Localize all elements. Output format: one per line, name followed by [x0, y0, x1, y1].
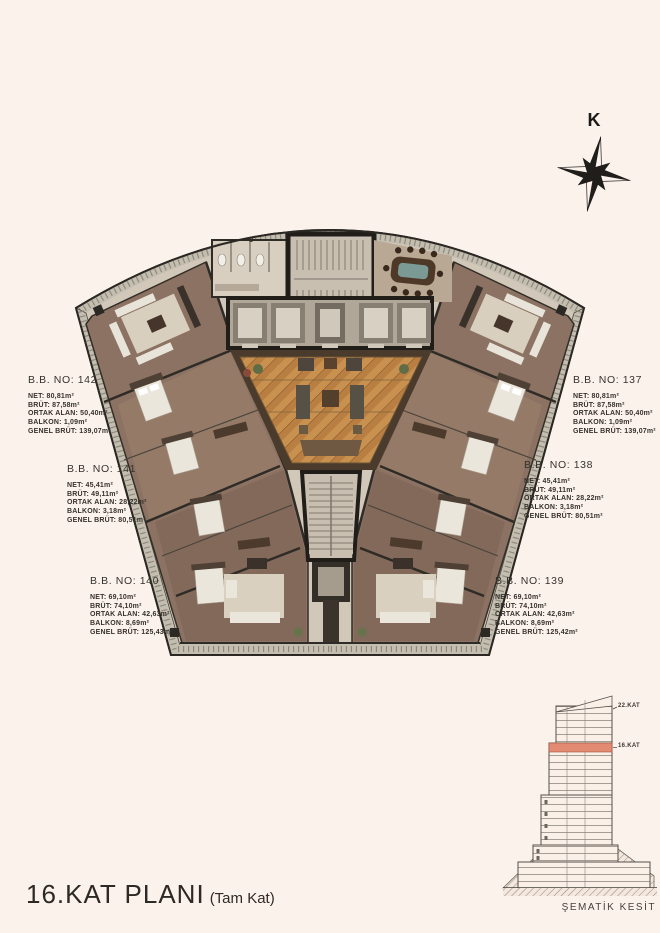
unit-area-line: BALKON: 1,09m² — [28, 419, 111, 428]
unit-area-line: BRÜT: 74,10m² — [495, 603, 578, 612]
unit-info-139: B.B. NO: 139 NET: 69,10m² BRÜT: 74,10m² … — [495, 575, 578, 638]
unit-area-line: NET: 80,81m² — [573, 393, 656, 402]
elevator-bank — [228, 298, 432, 348]
section-ground-hatch — [503, 888, 657, 896]
unit-area-line: GENEL BRÜT: 125,43m² — [90, 629, 173, 638]
unit-area-line: GENEL BRÜT: 125,42m² — [495, 629, 578, 638]
unit-area-line: NET: 69,10m² — [495, 594, 578, 603]
unit-info-142: B.B. NO: 142 NET: 80,81m² BRÜT: 87,58m² … — [28, 374, 111, 437]
unit-area-line: BALKON: 8,69m² — [90, 620, 173, 629]
unit-area-line: NET: 80,81m² — [28, 393, 111, 402]
unit-area-line: GENEL BRÜT: 139,07m² — [28, 428, 111, 437]
section-caption: ŞEMATİK KESİT — [496, 902, 656, 913]
unit-title: B.B. NO: 138 — [524, 459, 604, 471]
unit-area-line: NET: 45,41m² — [67, 482, 147, 491]
unit-area-line: ORTAK ALAN: 42,63m² — [90, 611, 173, 620]
unit-area-line: BRÜT: 87,58m² — [28, 402, 111, 411]
section-floor-label-16: 16.KAT — [618, 743, 640, 749]
unit-area-line: GENEL BRÜT: 139,07m² — [573, 428, 656, 437]
core — [212, 234, 452, 348]
leader-22kat — [613, 707, 617, 709]
unit-area-line: BRÜT: 49,11m² — [524, 487, 604, 496]
unit-area-line: GENEL BRÜT: 80,51m² — [67, 517, 147, 526]
unit-title: B.B. NO: 139 — [495, 575, 578, 587]
page-title: 16.KAT PLANI(Tam Kat) — [26, 879, 275, 910]
section-floor-label-22: 22.KAT — [618, 703, 640, 709]
unit-area-line: BALKON: 3,18m² — [524, 504, 604, 513]
unit-info-137: B.B. NO: 137 NET: 80,81m² BRÜT: 87,58m² … — [573, 374, 656, 437]
unit-title: B.B. NO: 142 — [28, 374, 111, 386]
unit-info-140: B.B. NO: 140 NET: 69,10m² BRÜT: 74,10m² … — [90, 575, 173, 638]
unit-area-line: BALKON: 8,69m² — [495, 620, 578, 629]
unit-area-line: ORTAK ALAN: 28,22m² — [67, 499, 147, 508]
unit-area-line: ORTAK ALAN: 50,40m² — [573, 410, 656, 419]
room-label-d: D — [249, 238, 253, 244]
wc-block — [212, 240, 288, 297]
unit-title: B.B. NO: 137 — [573, 374, 656, 386]
floor-plan-sheet: K D B.B. NO: 142 NET: 80,81m² BRÜT: 87,5… — [0, 0, 660, 933]
schematic-section — [503, 696, 657, 896]
unit-area-line: BALKON: 3,18m² — [67, 508, 147, 517]
unit-title: B.B. NO: 141 — [67, 463, 147, 475]
compass-north-label: K — [582, 110, 606, 131]
unit-title: B.B. NO: 140 — [90, 575, 173, 587]
unit-info-141: B.B. NO: 141 NET: 45,41m² BRÜT: 49,11m² … — [67, 463, 147, 526]
compass-rose — [551, 130, 637, 218]
page-title-main: 16.KAT PLANI — [26, 879, 205, 909]
unit-area-line: NET: 69,10m² — [90, 594, 173, 603]
unit-area-line: BRÜT: 74,10m² — [90, 603, 173, 612]
unit-info-138: B.B. NO: 138 NET: 45,41m² BRÜT: 49,11m² … — [524, 459, 604, 522]
unit-area-line: BALKON: 1,09m² — [573, 419, 656, 428]
unit-area-line: ORTAK ALAN: 42,63m² — [495, 611, 578, 620]
unit-area-line: NET: 45,41m² — [524, 478, 604, 487]
page-title-suffix: (Tam Kat) — [210, 890, 275, 907]
unit-area-line: BRÜT: 49,11m² — [67, 491, 147, 500]
unit-area-line: BRÜT: 87,58m² — [573, 402, 656, 411]
unit-area-line: ORTAK ALAN: 50,40m² — [28, 410, 111, 419]
unit-area-line: ORTAK ALAN: 28,22m² — [524, 495, 604, 504]
unit-area-line: GENEL BRÜT: 80,51m² — [524, 513, 604, 522]
section-highlight-floor-16 — [549, 743, 612, 752]
